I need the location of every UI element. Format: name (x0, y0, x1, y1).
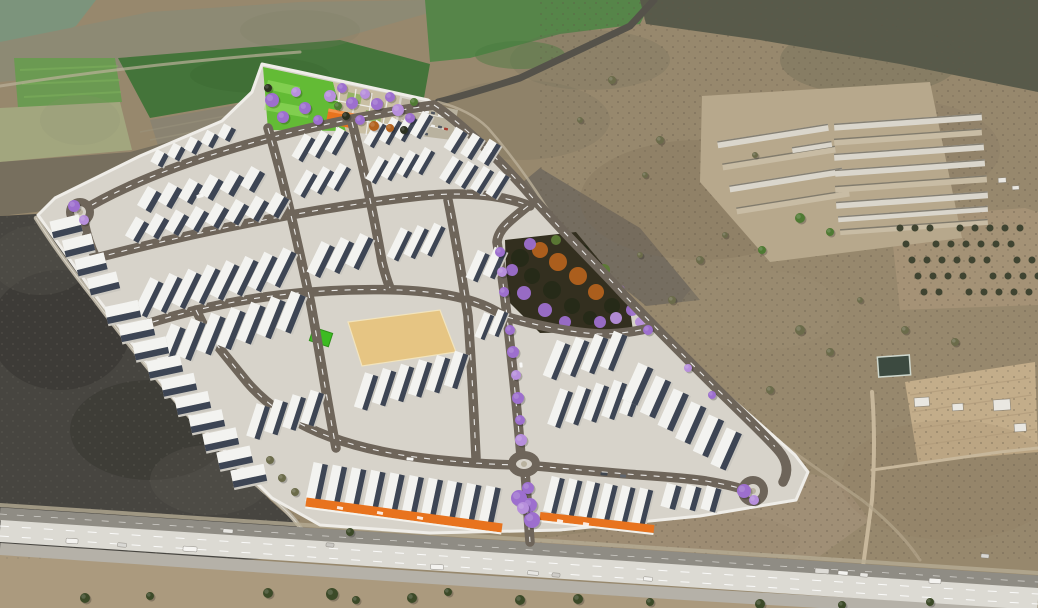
highway-vehicle (223, 529, 233, 534)
aerial-render-canvas (0, 0, 1038, 608)
homestead-shed (1012, 186, 1019, 190)
orchard-tree (960, 273, 967, 280)
orchard-tree (933, 241, 940, 248)
homestead-shed (914, 397, 930, 407)
orchard-tree (954, 257, 961, 264)
orchard-tree (897, 225, 904, 232)
woodland-tree (588, 284, 604, 300)
highway-vehicle (929, 578, 941, 584)
woodland-tree (551, 235, 561, 245)
woodland-tree (569, 267, 587, 285)
orchard-tree (948, 241, 955, 248)
orchard-tree (1002, 225, 1009, 232)
terrain-mottle (40, 95, 120, 145)
orchard-tree (969, 257, 976, 264)
orchard-tree (963, 241, 970, 248)
orchard-tree (1011, 289, 1018, 296)
orchard-tree (1005, 273, 1012, 280)
orchard-tree (945, 273, 952, 280)
orchard-tree (1020, 273, 1027, 280)
orchard-tree (981, 289, 988, 296)
orchard-tree (915, 273, 922, 280)
orchard-tree (927, 225, 934, 232)
orchard-tree (972, 225, 979, 232)
woodland-tree (564, 298, 580, 314)
highway-vehicle (643, 577, 652, 582)
highway-vehicle (815, 568, 829, 574)
orchard-tree (912, 225, 919, 232)
highway-vehicle (860, 573, 868, 578)
orchard-tree (1014, 257, 1021, 264)
highway-vehicle (552, 573, 560, 578)
orchard-tree (1017, 225, 1024, 232)
homestead-shed (993, 399, 1011, 411)
orchard-tree (966, 289, 973, 296)
orchard-tree (921, 289, 928, 296)
orchard-tree (984, 257, 991, 264)
woodland-tree (517, 286, 531, 300)
orchard-tree (1008, 241, 1015, 248)
orchard-tree (996, 289, 1003, 296)
woodland-tree (610, 312, 622, 324)
vehicle (519, 362, 522, 367)
orchard-tree (990, 273, 997, 280)
homestead-pond (877, 355, 910, 377)
vehicle (600, 472, 607, 475)
woodland-tree (524, 268, 540, 284)
orchard-tree (930, 273, 937, 280)
highway-vehicle (527, 571, 538, 576)
highway-vehicle (430, 564, 443, 570)
orchard-tree (903, 241, 910, 248)
orchard-tree (936, 289, 943, 296)
homestead-shed (952, 403, 963, 411)
woodland-tree (543, 281, 561, 299)
woodland-tree (538, 303, 552, 317)
aerial-screenshot (0, 0, 1038, 608)
vehicle (620, 474, 626, 477)
orchard-tree (993, 241, 1000, 248)
highway-vehicle (183, 546, 197, 552)
woodland-tree (594, 316, 606, 328)
roundabout-island (521, 461, 527, 467)
terrain-mottle (240, 10, 360, 50)
orchard-tree (1026, 289, 1033, 296)
highway-vehicle (66, 538, 78, 544)
homestead-shed (998, 177, 1006, 183)
highway-vehicle (981, 554, 989, 559)
orchard-tree (987, 225, 994, 232)
highway-vehicle (326, 543, 334, 548)
orchard-tree (1029, 257, 1036, 264)
highway-vehicle (117, 543, 126, 548)
orchard-tree (909, 257, 916, 264)
homestead-shed (1014, 423, 1027, 432)
woodland-tree (604, 298, 620, 314)
woodland-tree (549, 253, 567, 271)
woodland-tree (524, 238, 536, 250)
orchard-tree (939, 257, 946, 264)
orchard-tree (924, 257, 931, 264)
orchard-tree (978, 241, 985, 248)
highway-vehicle (838, 571, 848, 576)
orchard-tree (957, 225, 964, 232)
